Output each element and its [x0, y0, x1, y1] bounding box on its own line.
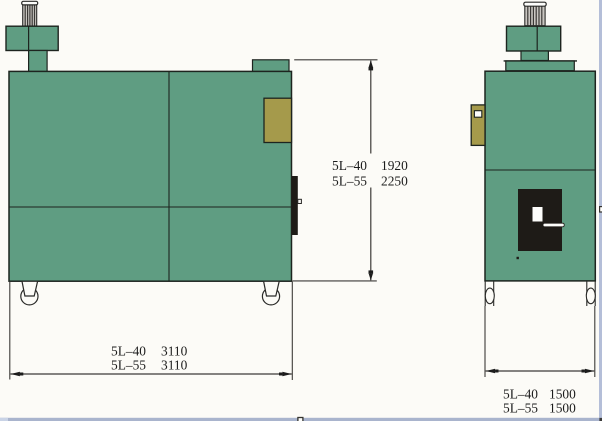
svg-text:3110: 3110 [161, 343, 188, 358]
svg-text:5L–40: 5L–40 [332, 158, 367, 173]
svg-text:5L–55: 5L–55 [111, 357, 146, 372]
svg-text:5L–40: 5L–40 [503, 386, 538, 401]
svg-text:5L–55: 5L–55 [332, 173, 367, 188]
svg-text:2250: 2250 [381, 173, 408, 188]
svg-text:3110: 3110 [161, 357, 188, 372]
svg-text:1500: 1500 [549, 386, 576, 401]
svg-text:1920: 1920 [381, 158, 408, 173]
svg-text:1500: 1500 [549, 401, 576, 416]
svg-text:5L–55: 5L–55 [503, 401, 538, 416]
svg-text:5L–40: 5L–40 [111, 343, 146, 358]
